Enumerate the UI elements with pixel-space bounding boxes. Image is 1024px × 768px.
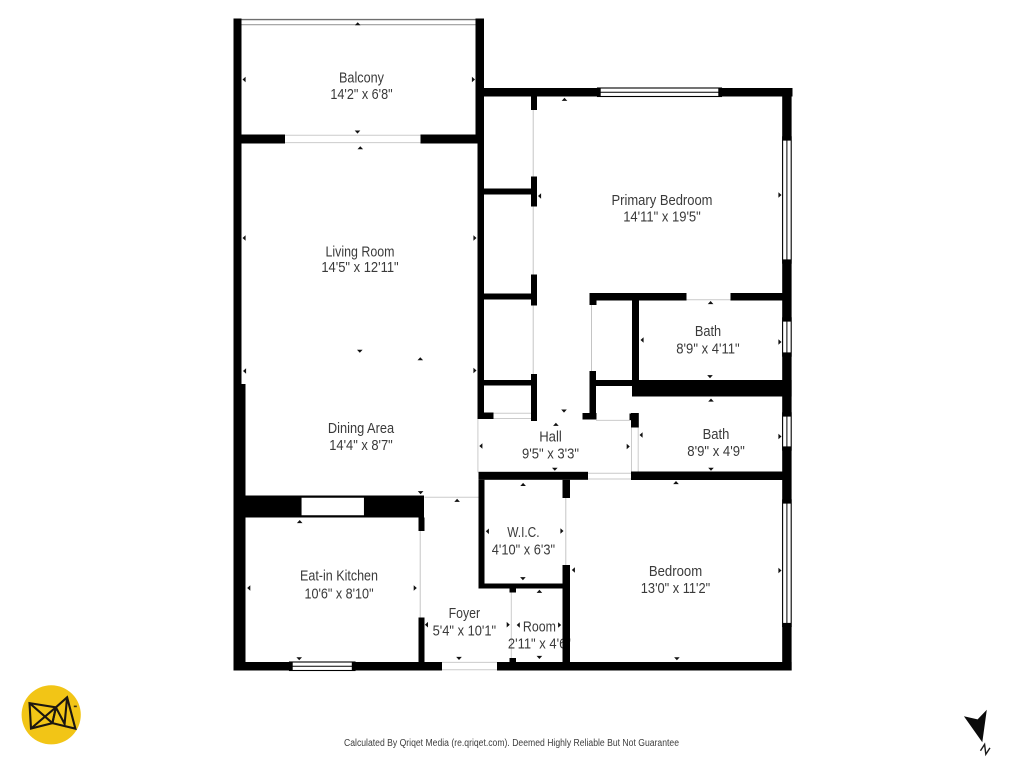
svg-text:2'11" x 4'6": 2'11" x 4'6" [508,636,571,653]
svg-text:10'6" x 8'10": 10'6" x 8'10" [304,585,373,602]
svg-text:4'10" x 6'3": 4'10" x 6'3" [492,541,555,558]
svg-text:13'0" x 11'2": 13'0" x 11'2" [641,580,710,597]
svg-text:14'5" x 12'11": 14'5" x 12'11" [321,259,398,276]
svg-text:Calculated By Qriqet Media (re: Calculated By Qriqet Media (re.qriqet.co… [344,738,679,749]
svg-text:14'2" x 6'8": 14'2" x 6'8" [330,86,392,103]
svg-text:8'9" x 4'9": 8'9" x 4'9" [687,443,745,460]
svg-text:14'11" x 19'5": 14'11" x 19'5" [623,209,701,226]
svg-text:Primary Bedroom: Primary Bedroom [612,192,713,209]
svg-text:Bedroom: Bedroom [649,563,702,580]
svg-text:Bath: Bath [695,323,721,340]
svg-text:5'4" x 10'1": 5'4" x 10'1" [433,622,497,639]
svg-text:Eat-in Kitchen: Eat-in Kitchen [300,568,378,585]
svg-text:Balcony: Balcony [339,70,384,87]
svg-text:Living Room: Living Room [326,243,395,260]
svg-text:8'9" x 4'11": 8'9" x 4'11" [676,340,739,357]
svg-text:W.I.C.: W.I.C. [507,524,539,541]
svg-text:Room: Room [523,619,556,636]
svg-text:9'5" x 3'3": 9'5" x 3'3" [522,446,579,463]
svg-text:Foyer: Foyer [449,605,481,622]
svg-text:Dining Area: Dining Area [328,420,395,437]
svg-text:Hall: Hall [539,429,562,446]
svg-text:Bath: Bath [703,426,730,443]
svg-text:14'4" x 8'7": 14'4" x 8'7" [329,437,393,454]
